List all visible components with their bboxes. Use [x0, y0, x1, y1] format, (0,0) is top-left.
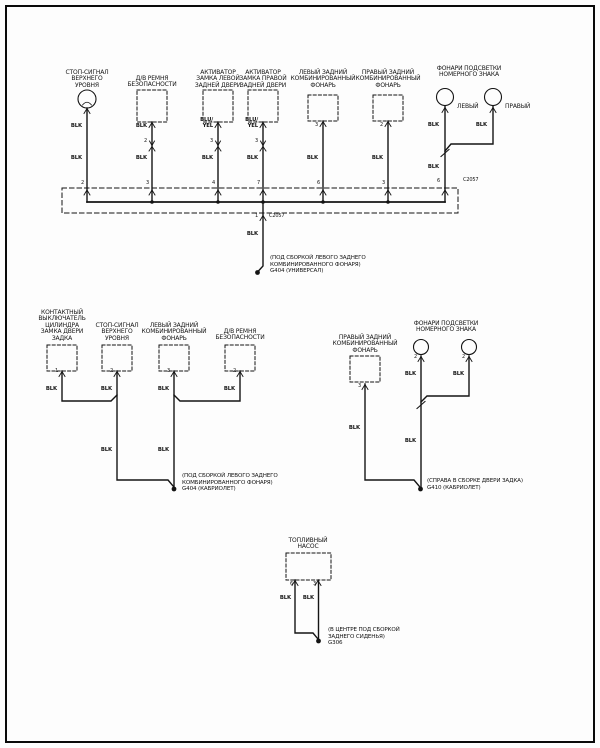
wire-blk-actuator-right: BLK: [247, 156, 258, 162]
wire-blk-license-left-top: BLK: [428, 123, 439, 129]
pin-bus-actuator-right: 7: [257, 181, 260, 186]
wire-blk-seatbelt-mid: BLK: [224, 387, 235, 393]
pin-bus-left-tail: 6: [317, 181, 320, 186]
pin-actuator-right-inline: 3: [255, 139, 258, 144]
label-license-left: ЛЕВЫЙ: [457, 104, 478, 110]
label-seatbelt-switch-mid: Д/В РЕМНЯ БЕЗОПАСНОСТИ: [215, 329, 264, 342]
wire-blk-fuel-left: BLK: [280, 596, 291, 602]
label-right-tail-lamp-top: ПРАВЫЙ ЗАДНИЙ КОМБИНИРОВАННЫЙ ФОНАРЬ: [356, 70, 421, 89]
pin-bus-exit: 1: [255, 214, 258, 219]
wire-blk-license-mid-lower: BLK: [405, 439, 416, 445]
pin-seatbelt-mid: 2: [233, 369, 236, 374]
label-right-tail-lamp-mid: ПРАВЫЙ ЗАДНИЙ КОМБИНИРОВАННЫЙ ФОНАРЬ: [333, 335, 398, 354]
wire-blk-stop-lower: BLK: [71, 156, 82, 162]
wire-blk-actuator-left: BLK: [202, 156, 213, 162]
pin-right-tail-top: 2: [380, 123, 383, 128]
pin-right-tail-mid: 3: [358, 384, 361, 389]
label-tailgate-lock-switch: КОНТАКТНЫЙ ВЫКЛЮЧАТЕЛЬ ЦИЛИНДРА ЗАМКА ДВ…: [38, 310, 85, 342]
ground-g410: (СПРАВА В СБОРКЕ ДВЕРИ ЗАДКА) G410 (КАБР…: [427, 478, 523, 491]
wire-blk-fuel-right: BLK: [303, 596, 314, 602]
label-left-tail-lamp-top: ЛЕВЫЙ ЗАДНИЙ КОМБИНИРОВАННЫЙ ФОНАРЬ: [291, 70, 356, 89]
label-license-right: ПРАВЫЙ: [505, 104, 530, 110]
pin-bus-seatbelt: 3: [146, 181, 149, 186]
pin-license-left-mid: 2: [414, 355, 417, 360]
ground-g404-universal: (ПОД СБОРКОЙ ЛЕВОГО ЗАДНЕГО КОМБИНИРОВАН…: [270, 255, 366, 275]
pin-license-right-mid: 2: [462, 355, 465, 360]
wire-blk-seatbelt-upper: BLK: [136, 124, 147, 130]
label-license-lamps-top: ФОНАРИ ПОДСВЕТКИ НОМЕРНОГО ЗНАКА: [437, 66, 502, 79]
connector-c2057-top: C2057: [463, 178, 478, 183]
wire-bluyel-actuator-right: BLU/ YEL: [245, 118, 258, 130]
ground-g404-cabrio: (ПОД СБОРКОЙ ЛЕВОГО ЗАДНЕГО КОМБИНИРОВАН…: [182, 473, 278, 493]
label-layer: СТОП-СИГНАЛ ВЕРХНЕГО УРОВНЯД/В РЕМНЯ БЕЗ…: [0, 0, 600, 748]
label-stop-signal-top: СТОП-СИГНАЛ ВЕРХНЕГО УРОВНЯ: [65, 70, 108, 89]
pin-license-bus: 6: [437, 179, 440, 184]
pin-left-tail-top: 3: [315, 123, 318, 128]
pin-stop-mid: 2: [110, 369, 113, 374]
label-seatbelt-switch-top: Д/В РЕМНЯ БЕЗОПАСНОСТИ: [127, 76, 176, 89]
label-lock-actuator-left: АКТИВАТОР ЗАМКА ЛЕВОЙ ЗАДНЕЙ ДВЕРИ: [195, 70, 241, 89]
wire-blk-license-right-mid: BLK: [453, 372, 464, 378]
wire-blk-license-right-top: BLK: [476, 123, 487, 129]
label-lock-actuator-right: АКТИВАТОР ЗАМКА ПРАВОЙ ЗАДНЕЙ ДВЕРИ: [239, 70, 286, 89]
wire-blk-lock-switch: BLK: [46, 387, 57, 393]
wire-blk-right-tail-mid: BLK: [349, 426, 360, 432]
label-license-lamps-mid: ФОНАРИ ПОДСВЕТКИ НОМЕРНОГО ЗНАКА: [414, 321, 479, 334]
wire-blk-stop-upper: BLK: [71, 124, 82, 130]
label-left-tail-lamp-mid: ЛЕВЫЙ ЗАДНИЙ КОМБИНИРОВАННЫЙ ФОНАРЬ: [142, 323, 207, 342]
pin-bus-actuator-left: 4: [212, 181, 215, 186]
wire-blk-stop-mid: BLK: [101, 387, 112, 393]
pin-bus-stop: 2: [81, 181, 84, 186]
wire-blk-license-splice: BLK: [428, 165, 439, 171]
wire-blk-seatbelt-lower: BLK: [136, 156, 147, 162]
pin-fuel-right: 3: [313, 582, 316, 587]
label-fuel-pump: ТОПЛИВНЫЙ НАСОС: [289, 538, 328, 551]
ground-g306: (В ЦЕНТРЕ ПОД СБОРКОЙ ЗАДНЕГО СИДЕНЬЯ) G…: [328, 627, 400, 647]
pin-bus-right-tail: 3: [382, 181, 385, 186]
label-stop-signal-mid: СТОП-СИГНАЛ ВЕРХНЕГО УРОВНЯ: [95, 323, 138, 342]
wire-blk-left-tail-mid: BLK: [158, 387, 169, 393]
wire-bluyel-actuator-left: BLU/ YEL: [200, 118, 213, 130]
wire-blk-left-tail-mid-lower: BLK: [158, 448, 169, 454]
pin-seatbelt-inline: 2: [144, 139, 147, 144]
pin-actuator-left-inline: 3: [210, 139, 213, 144]
wire-blk-stop-mid-lower: BLK: [101, 448, 112, 454]
wire-blk-right-tail: BLK: [372, 156, 383, 162]
pin-fuel-left: 6: [290, 582, 293, 587]
wire-blk-ground-univ: BLK: [247, 232, 258, 238]
wire-blk-left-tail: BLK: [307, 156, 318, 162]
pin-lock-switch: 1: [55, 369, 58, 374]
wire-blk-license-left-mid: BLK: [405, 372, 416, 378]
connector-c2057-exit: C2057: [269, 214, 284, 219]
pin-left-tail-mid: 3: [167, 369, 170, 374]
wiring-diagram-page: СТОП-СИГНАЛ ВЕРХНЕГО УРОВНЯД/В РЕМНЯ БЕЗ…: [0, 0, 600, 748]
